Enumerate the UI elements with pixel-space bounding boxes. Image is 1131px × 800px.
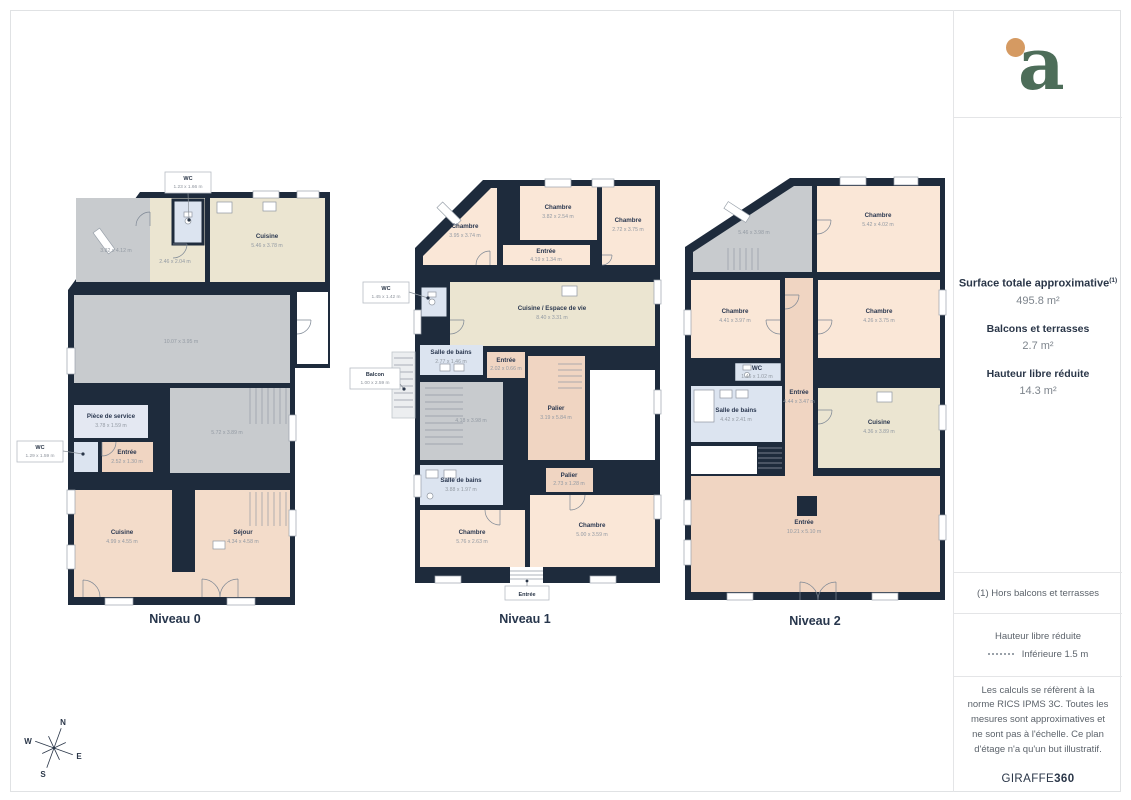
logo-section: a xyxy=(954,10,1122,118)
floor-plan-niveau-1: WC 1.45 x 1.42 m Balcon 1.00 x 2.59 m En… xyxy=(340,160,670,660)
disclaimer-section: Les calculs se réfèrent à la norme RICS … xyxy=(954,677,1122,792)
room-dims: 8.40 x 3.31 m xyxy=(536,315,567,321)
room-name: Salle de bains xyxy=(430,349,472,356)
giraffe360-brand: GIRAFFE360 xyxy=(1001,773,1074,785)
room-name: Chambre xyxy=(722,308,749,315)
room-name: Chambre xyxy=(615,217,642,224)
room-dims: 5.42 x 4.02 m xyxy=(862,222,893,228)
room-dims: 5.00 x 3.59 m xyxy=(576,532,607,538)
room-dims: 1.46 x 1.02 m xyxy=(741,374,772,380)
legend-title: Hauteur libre réduite xyxy=(995,631,1081,642)
floor-label-niveau-0: Niveau 0 xyxy=(149,612,200,626)
room-name: Chambre xyxy=(452,223,479,230)
room-dims: 3.19 x 5.84 m xyxy=(540,415,571,421)
callout-name: WC xyxy=(35,445,44,451)
callout-dims: 1.29 x 1.59 m xyxy=(25,453,54,459)
floor-plan-niveau-0: WC 1.23 x 1.66 m WC 1.29 x 1.59 m 3.82 x… xyxy=(5,160,350,660)
room-name: Cuisine xyxy=(868,419,891,426)
reduced-height-value: 14.3 m² xyxy=(1019,385,1056,397)
room-name: Pièce de service xyxy=(87,413,136,420)
compass-west-label: W xyxy=(24,737,32,746)
compass-north-label: N xyxy=(60,718,66,727)
callout-dims: 1.00 x 2.59 m xyxy=(360,380,389,386)
room-dims: 2.77 x 1.46 m xyxy=(435,359,466,365)
room-name: Salle de bains xyxy=(715,407,757,414)
disclaimer-text: Les calculs se réfèrent à la norme RICS … xyxy=(967,684,1109,758)
brand-name: GIRAFFE xyxy=(1001,773,1054,785)
legend-section: Hauteur libre réduite Inférieure 1.5 m xyxy=(954,614,1122,677)
room-name: Chambre xyxy=(579,522,606,529)
callout-name: WC xyxy=(183,176,192,182)
room-dims: 4.26 x 3.75 m xyxy=(863,318,894,324)
room-name: Entrée xyxy=(496,357,516,364)
legend-item: Inférieure 1.5 m xyxy=(988,649,1089,660)
callout-dims: 1.45 x 1.42 m xyxy=(371,294,400,300)
legend-item-label: Inférieure 1.5 m xyxy=(1022,649,1089,660)
floor-plan-page: { "sidebar": { "logo_letter": "a", "surf… xyxy=(0,0,1131,800)
room-dims: 4.99 x 4.55 m xyxy=(106,539,137,545)
callout-dims: 1.23 x 1.66 m xyxy=(173,184,202,190)
room-dims: 3.82 x 2.54 m xyxy=(542,214,573,220)
floor-plan-niveau-2: 5.46 x 3.98 m Chambre 5.42 x 4.02 m Cham… xyxy=(672,160,972,660)
room-name: Entrée xyxy=(117,449,137,456)
room-name: Entrée xyxy=(794,519,814,526)
room-dims: 5.72 x 3.89 m xyxy=(211,430,242,436)
room-dims: 4.36 x 3.89 m xyxy=(863,429,894,435)
room-name: Cuisine xyxy=(111,529,134,536)
surface-total-title-text: Surface totale approximative xyxy=(959,278,1109,290)
room-dims: 3.95 x 3.74 m xyxy=(449,233,480,239)
room-dims: 4.42 x 2.41 m xyxy=(720,417,751,423)
footnote: (1) Hors balcons et terrasses xyxy=(954,573,1122,614)
agency-logo: a xyxy=(1006,24,1070,104)
room-name: Chambre xyxy=(459,529,486,536)
room-dims: 4.41 x 3.97 m xyxy=(719,318,750,324)
room-dims: 3.78 x 1.59 m xyxy=(95,423,126,429)
room-dims: 2.02 x 0.66 m xyxy=(490,366,521,372)
room-name: Cuisine xyxy=(256,233,279,240)
room-dims: 4.34 x 4.58 m xyxy=(227,539,258,545)
balcon-callout: Balcon 1.00 x 2.59 m xyxy=(350,368,406,391)
room-name: Chambre xyxy=(545,204,572,211)
callout-name: Balcon xyxy=(366,372,385,378)
brand-suffix: 360 xyxy=(1054,773,1074,785)
floor-label-niveau-1: Niveau 1 xyxy=(499,612,550,626)
room-name: Cuisine / Espace de vie xyxy=(518,305,587,312)
room-name: Entrée xyxy=(536,248,556,255)
room-dims: 4.18 x 3.98 m xyxy=(455,418,486,424)
reduced-height-label: Hauteur libre réduite xyxy=(987,368,1090,380)
info-sidebar: a Surface totale approximative(1) 495.8 … xyxy=(953,10,1122,792)
room-dims: 10.21 x 5.10 m xyxy=(787,529,821,535)
room-name: Salle de bains xyxy=(440,477,482,484)
callout-name: Entrée xyxy=(518,592,535,598)
room-name: Chambre xyxy=(866,308,893,315)
room-dims: 5.76 x 2.63 m xyxy=(456,539,487,545)
room-dims: 10.07 x 3.95 m xyxy=(164,339,198,345)
surface-total-title-sup: (1) xyxy=(1109,277,1117,284)
room-dims: 2.52 x 1.30 m xyxy=(111,459,142,465)
room-dims: 5.46 x 3.78 m xyxy=(251,243,282,249)
room-dims: 4.44 x 3.47 m xyxy=(783,399,814,405)
room-dims: 2.46 x 2.04 m xyxy=(159,259,190,265)
compass-star xyxy=(35,728,73,767)
surface-total-value: 495.8 m² xyxy=(1016,295,1059,307)
compass-east-label: E xyxy=(76,752,82,761)
surface-total-title: Surface totale approximative(1) xyxy=(959,277,1117,290)
room-dims: 3.88 x 1.97 m xyxy=(445,487,476,493)
room-dims: 2.72 x 3.75 m xyxy=(612,227,643,233)
balconies-label: Balcons et terrasses xyxy=(987,323,1090,335)
room-name: Palier xyxy=(548,405,565,412)
floor-label-niveau-2: Niveau 2 xyxy=(789,614,840,628)
room-dims: 3.82 x 4.12 m xyxy=(100,248,131,254)
room-dims: 5.46 x 3.98 m xyxy=(738,230,769,236)
room-dims: 4.19 x 1.34 m xyxy=(530,257,561,263)
room-name: Palier xyxy=(561,472,578,479)
logo-letter: a xyxy=(1018,24,1065,104)
room-name: Séjour xyxy=(233,529,253,536)
room-name: Entrée xyxy=(789,389,809,396)
room-dims: 2.73 x 1.28 m xyxy=(553,481,584,487)
callout-name: WC xyxy=(381,286,390,292)
room-name: Chambre xyxy=(865,212,892,219)
balconies-value: 2.7 m² xyxy=(1022,340,1053,352)
surface-summary-section: Surface totale approximative(1) 495.8 m²… xyxy=(954,118,1122,573)
room-name: WC xyxy=(752,365,763,372)
compass-south-label: S xyxy=(40,770,46,779)
compass-rose: N W E S xyxy=(12,698,112,788)
dashed-line-icon xyxy=(988,653,1014,655)
